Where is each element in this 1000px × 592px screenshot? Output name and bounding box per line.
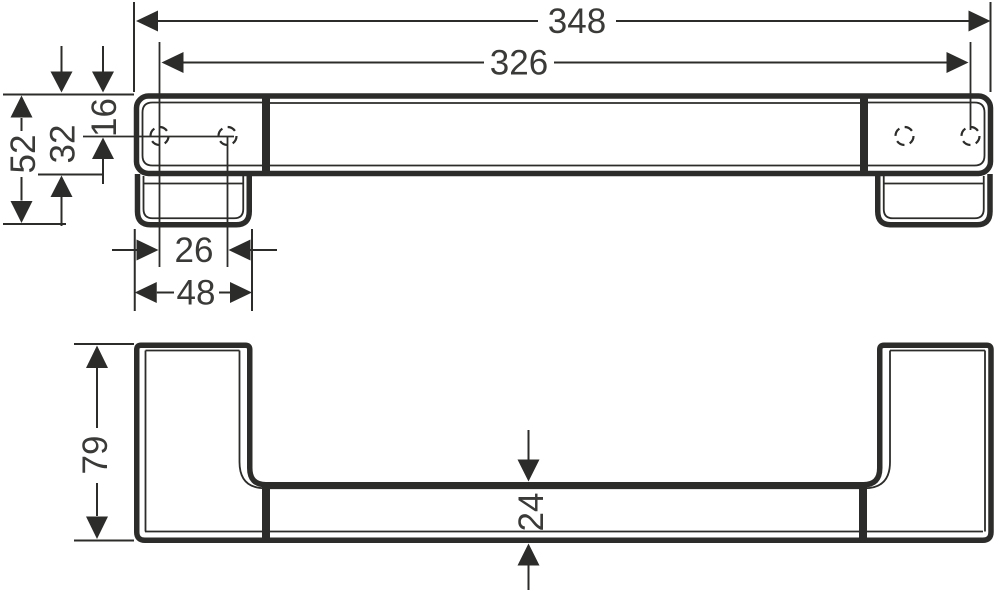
- dimension-79: 79: [74, 344, 134, 541]
- front-view: 79 24: [74, 344, 991, 590]
- dim-label-52: 52: [4, 135, 43, 174]
- arrowhead-right-icon: [969, 11, 991, 32]
- technical-drawing: 348 326 52 32 16: [0, 0, 1000, 592]
- arrowhead-up-icon: [518, 544, 540, 566]
- wall-plate-right: [878, 174, 990, 225]
- dim-label-326: 326: [490, 44, 548, 83]
- dimension-348: 348: [134, 2, 991, 92]
- dimension-24: 24: [512, 430, 551, 590]
- end-cap-inner-left: [143, 103, 267, 166]
- arrowhead-up-icon: [92, 138, 114, 160]
- dimension-16: 16: [85, 46, 124, 184]
- arrowhead-down-icon: [518, 460, 540, 482]
- rail-inner-top-line: [240, 351, 891, 489]
- grab-bar-profile: [137, 96, 991, 174]
- arrowhead-left-icon: [136, 11, 158, 32]
- arrowhead-up-icon: [51, 176, 73, 198]
- dimension-326: 326: [162, 44, 969, 83]
- dim-label-48: 48: [177, 274, 216, 313]
- arrowhead-left-icon: [229, 240, 251, 261]
- arrowhead-down-icon: [11, 201, 33, 223]
- arrowhead-up-icon: [11, 96, 33, 118]
- arrowhead-left-icon: [135, 282, 157, 303]
- arrowhead-down-icon: [51, 72, 73, 93]
- arrowhead-right-icon: [947, 52, 969, 73]
- dim-label-79: 79: [76, 436, 115, 475]
- arrowhead-down-icon: [92, 72, 114, 93]
- side-view: 348 326 52 32 16: [3, 2, 991, 313]
- dim-label-24: 24: [512, 493, 551, 532]
- wall-plate-left: [138, 174, 250, 225]
- arrowhead-right-icon: [230, 282, 252, 303]
- arrowhead-left-icon: [162, 52, 184, 73]
- arrowhead-down-icon: [86, 517, 108, 540]
- wall-plate-right-inner: [884, 176, 984, 218]
- dim-label-26: 26: [175, 231, 214, 270]
- dim-label-348: 348: [548, 2, 606, 41]
- dim-label-32: 32: [44, 125, 83, 164]
- wall-plate-left-outline: [138, 174, 250, 225]
- end-cap-inner-right: [864, 103, 985, 166]
- dim-label-16: 16: [85, 98, 124, 137]
- bracket-body: [137, 345, 991, 540]
- drawing-canvas: 348 326 52 32 16: [0, 0, 1000, 592]
- screw-hole-icon: [896, 127, 914, 145]
- arrowhead-up-icon: [86, 346, 108, 369]
- wall-plate-right-outline: [878, 174, 990, 225]
- arrowhead-right-icon: [137, 240, 159, 261]
